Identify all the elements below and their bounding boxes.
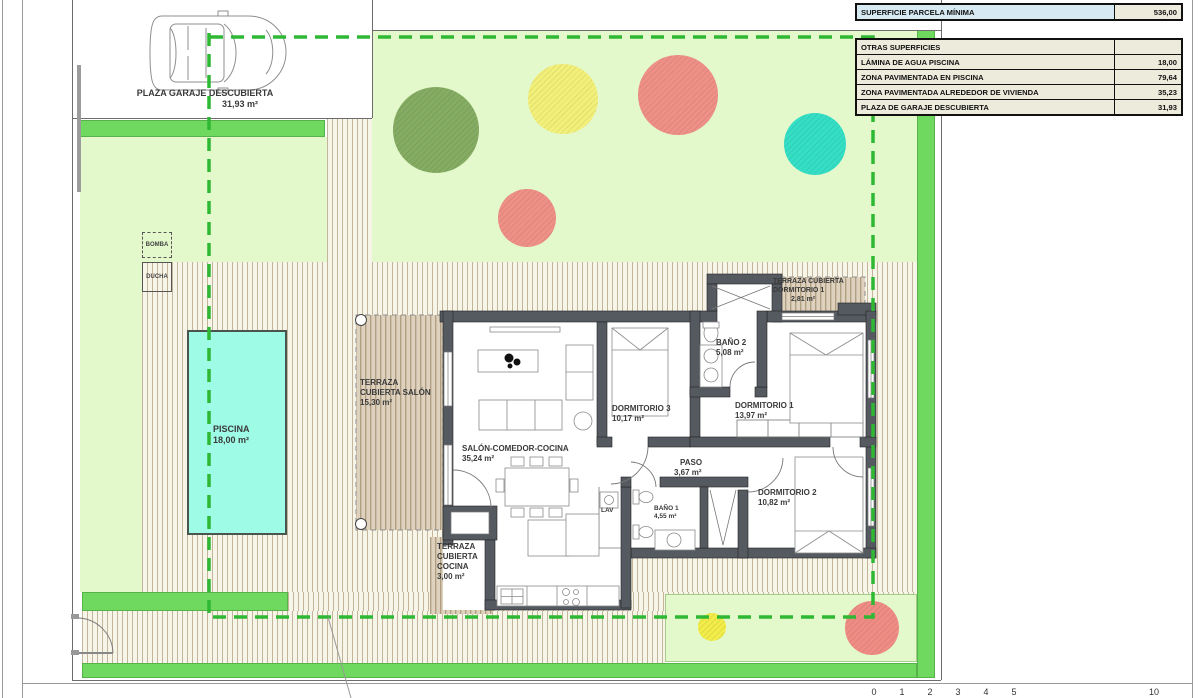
ruler-number: 4 bbox=[978, 687, 994, 697]
dorm1-label: DORMITORIO 1 13,97 m² bbox=[735, 401, 794, 421]
ducha-box: DUCHA bbox=[142, 262, 172, 292]
leader-line bbox=[328, 617, 351, 698]
ruler-number: 0 bbox=[866, 687, 882, 697]
bomba-label: BOMBA bbox=[146, 242, 169, 248]
ruler-number: 5 bbox=[1006, 687, 1022, 697]
table-row: LÁMINA DE AGUA PISCINA 18,00 bbox=[857, 54, 1181, 69]
table-row: SUPERFICIE PARCELA MÍNIMA 536,00 bbox=[857, 5, 1181, 19]
bano1-label: BAÑO 1 4,55 m² bbox=[654, 505, 679, 521]
legend-header-label: SUPERFICIE PARCELA MÍNIMA bbox=[857, 5, 1114, 19]
entrance-gate bbox=[71, 614, 113, 655]
terraza-dorm1-label: TERRAZA CUBIERTA DORMITORIO 1 2,81 m² bbox=[773, 278, 844, 304]
terraza-salon-label: TERRAZA CUBIERTA SALÓN 15,30 m² bbox=[360, 378, 431, 408]
lav-label: LAV bbox=[601, 507, 614, 515]
table-row: ZONA PAVIMENTADA EN PISCINA 79,64 bbox=[857, 69, 1181, 84]
ruler-number: 2 bbox=[922, 687, 938, 697]
legend-header-value: 536,00 bbox=[1114, 5, 1181, 19]
car-icon bbox=[150, 11, 286, 93]
salon-label: SALÓN-COMEDOR-COCINA 35,24 m² bbox=[462, 444, 569, 464]
site-plan-sheet: { "legend_table": { "header": {"label": … bbox=[0, 0, 1200, 698]
ruler-number: 1 bbox=[894, 687, 910, 697]
bano2-label: BAÑO 2 5,08 m² bbox=[716, 338, 746, 358]
table-row: PLAZA DE GARAJE DESCUBIERTA 31,93 bbox=[857, 99, 1181, 114]
legend-table-body: OTRAS SUPERFICIES LÁMINA DE AGUA PISCINA… bbox=[855, 38, 1183, 116]
table-row: OTRAS SUPERFICIES bbox=[857, 40, 1181, 54]
dorm3-label: DORMITORIO 3 10,17 m² bbox=[612, 404, 671, 424]
boundary-wall-stub bbox=[77, 65, 81, 192]
legend-table-gap bbox=[855, 21, 1179, 38]
ducha-label: DUCHA bbox=[146, 274, 168, 280]
dorm2-label: DORMITORIO 2 10,82 m² bbox=[758, 488, 817, 508]
paso-label: PASO 3,67 m² bbox=[674, 458, 702, 478]
table-row: ZONA PAVIMENTADA ALREDEDOR DE VIVIENDA 3… bbox=[857, 84, 1181, 99]
pool-label: PISCINA 18,00 m² bbox=[213, 424, 250, 447]
ruler-number: 3 bbox=[950, 687, 966, 697]
garage-label: PLAZA GARAJE DESCUBIERTA 31,93 m² bbox=[110, 88, 300, 111]
terraza-cocina-label: TERRAZA CUBIERTA COCINA 3,00 m² bbox=[437, 542, 478, 582]
ruler-number: 10 bbox=[1146, 687, 1162, 697]
legend-table-header: SUPERFICIE PARCELA MÍNIMA 536,00 bbox=[855, 3, 1183, 21]
bomba-box: BOMBA bbox=[142, 232, 172, 258]
surface-legend-table: SUPERFICIE PARCELA MÍNIMA 536,00 OTRAS S… bbox=[855, 3, 1179, 116]
